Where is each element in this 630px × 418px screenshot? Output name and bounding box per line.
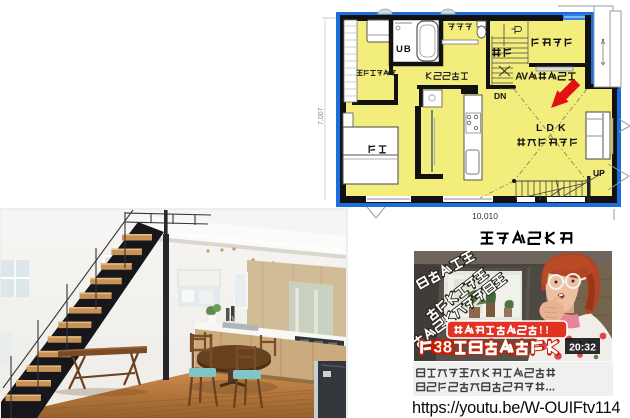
svg-text:UP: UP [593,168,605,178]
svg-text:10,010: 10,010 [472,211,498,221]
svg-text:20:32: 20:32 [569,342,596,354]
svg-text:!: ! [539,325,543,337]
svg-text:7,007: 7,007 [318,107,325,125]
svg-text:https://youtu.be/W-OUIFtv114: https://youtu.be/W-OUIFtv114 [412,399,620,417]
svg-text:8: 8 [443,339,452,357]
svg-text:...: ... [546,382,556,394]
svg-text:DN: DN [494,91,506,101]
svg-text:3: 3 [434,339,443,357]
svg-text:LDK: LDK [536,122,570,134]
svg-text:V: V [521,71,528,82]
svg-text:!: ! [545,325,549,337]
svg-text:UB: UB [396,44,412,55]
